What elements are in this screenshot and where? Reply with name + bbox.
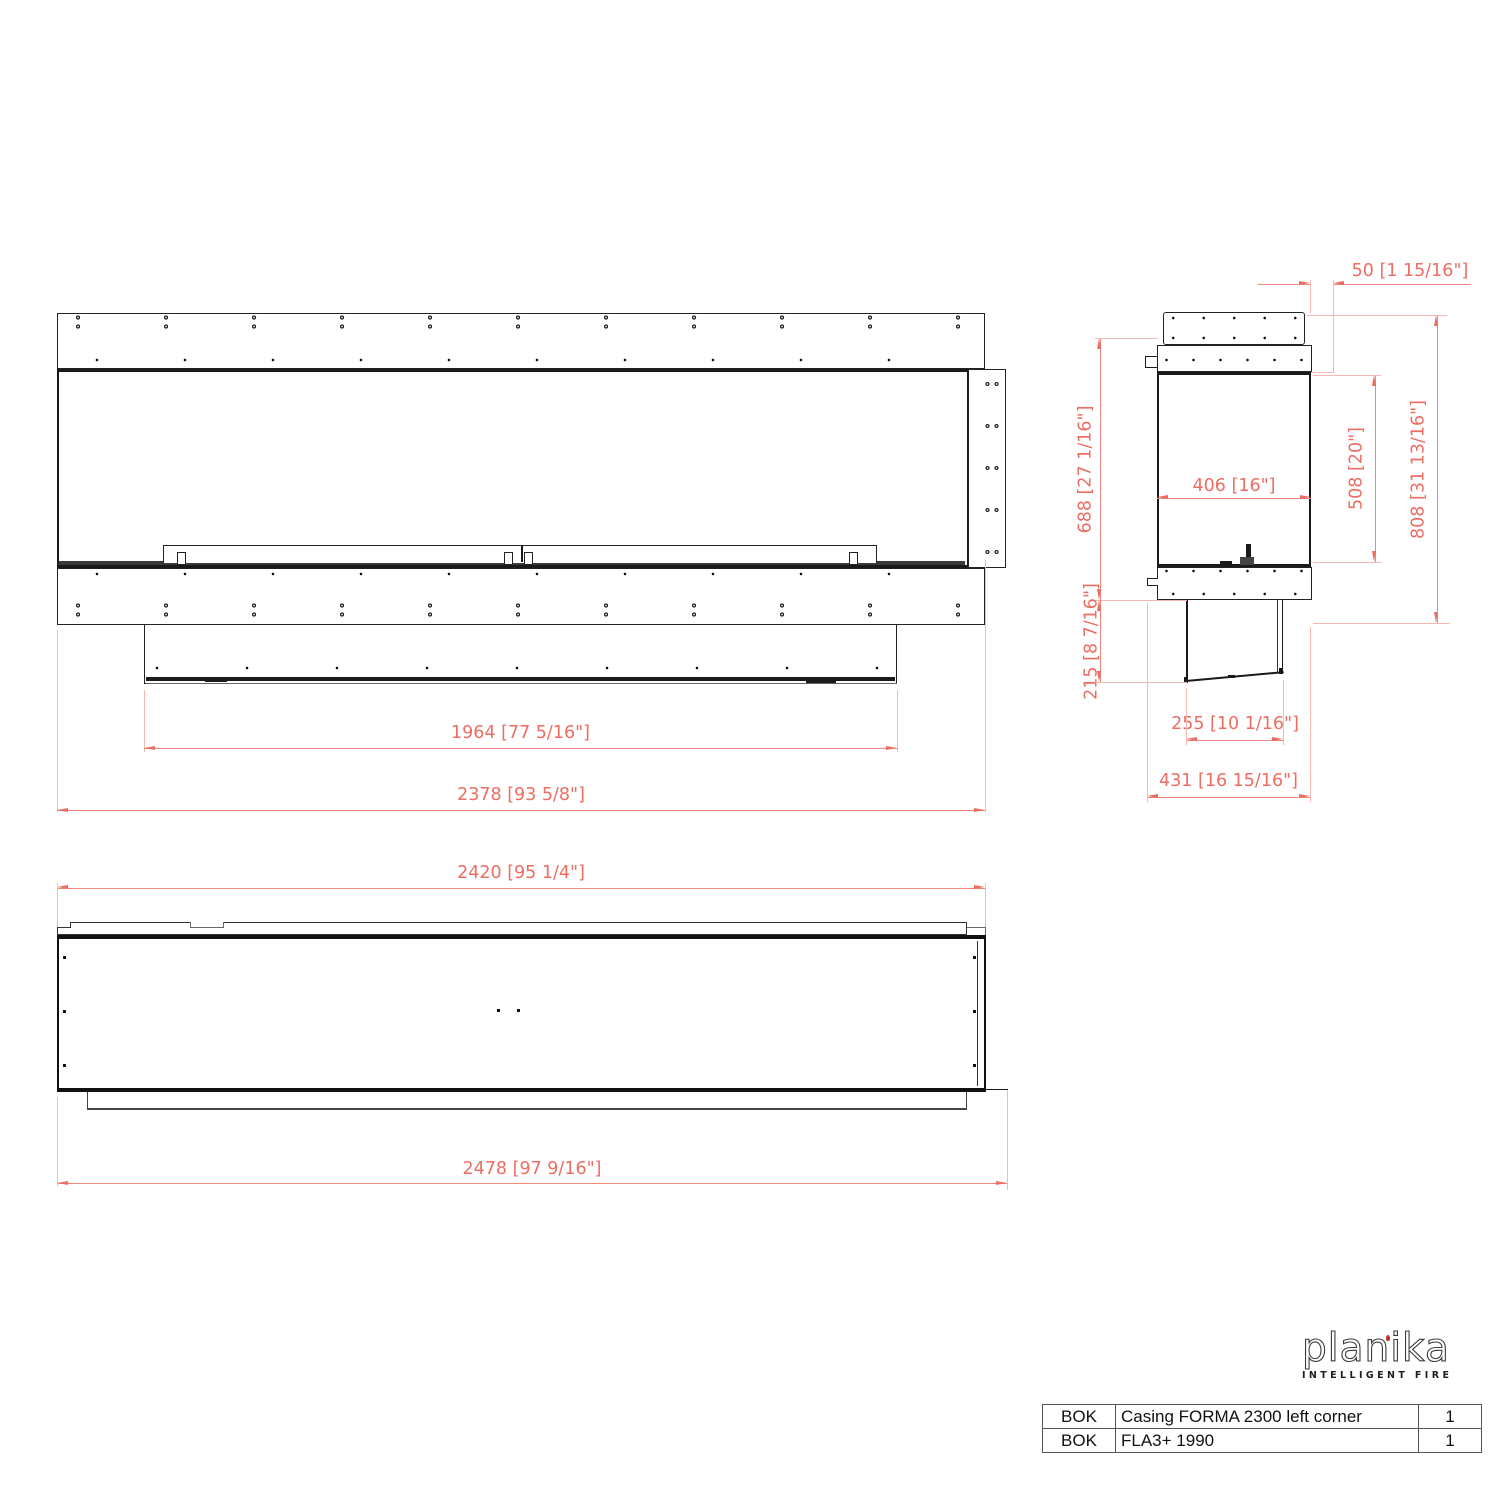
dim-line-431 [1147,797,1310,798]
extension-line [57,883,58,927]
hole-row [57,612,963,617]
arrowhead [1434,315,1438,326]
rivet-row [1164,592,1304,596]
extension-line [1283,680,1284,745]
dim-line-1964 [144,748,897,749]
brand-tagline: INTELLIGENT FIRE [1302,1370,1452,1381]
arrowhead [1186,737,1197,741]
wall-bracket [1145,367,1158,368]
front-main-body [57,369,968,568]
plan-back-strip [70,922,967,935]
burner-tray [163,545,877,563]
arrowhead [974,885,985,889]
dim-label-overall-height: 808 [31 13/16"] [1409,370,1430,570]
extension-line [1186,688,1187,745]
lip-bracket [806,680,836,683]
extension-line [1095,600,1187,601]
lip-bracket [205,679,227,682]
wall-bracket [1145,356,1158,357]
dim-line-2478 [57,1183,1007,1184]
dim-label-top-offset: 50 [1 15/16"] [1345,261,1475,282]
arrowhead [57,808,68,812]
arrowhead [996,1181,1007,1185]
dim-line-508 [1375,375,1376,562]
rivet-row [1164,336,1304,340]
arrowhead [974,808,985,812]
dim-label-body-height: 688 [27 1/16"] [1076,370,1097,570]
plan-inner-edge [977,941,978,1086]
bom-description-cell: FLA3+ 1990 [1116,1429,1419,1453]
tray-tab [524,552,533,565]
dim-label-overall-depth: 431 [16 15/16"] [1147,771,1310,792]
rivet-dot [63,956,66,959]
extension-line [1313,623,1450,624]
rivet-dot [517,1009,520,1012]
lower-duct-right [1282,600,1284,673]
wall-bracket [1145,356,1146,368]
dim-line-50b [1333,284,1471,285]
bom-row: BOK Casing FORMA 2300 left corner 1 [1043,1405,1482,1429]
strip-right-step [967,927,986,928]
arrowhead [1097,338,1101,349]
igniter-base [1240,557,1254,565]
extension-line [1147,603,1148,802]
duct-foot [1279,668,1283,674]
strip-left-tab [57,927,71,935]
rivet-row [144,666,894,670]
duct-foot [1228,675,1235,678]
dim-line-255 [1186,740,1283,741]
rivet-row [1158,569,1310,573]
tray-seam [521,546,523,562]
plan-main-body [57,935,986,1092]
extension-line [1313,562,1381,563]
dim-label-overall-width: 2378 [93 5/8"] [57,785,985,806]
bom-table: BOK Casing FORMA 2300 left corner 1 BOK … [1042,1404,1482,1453]
extension-line [1313,375,1381,376]
rivet-row [1158,358,1310,362]
hole-column [985,370,990,566]
rivet-dot [973,1064,976,1067]
hole-column [994,370,999,566]
extension-line [57,1097,58,1186]
dim-label-opening-depth: 406 [16"] [1157,476,1311,497]
arrowhead [1299,794,1310,798]
arrowhead [57,885,68,889]
dim-label-opening-height: 508 [20"] [1347,369,1368,569]
side-main-body [1157,372,1311,567]
bom-code-cell: BOK [1043,1429,1116,1453]
hole-row [57,315,963,320]
tray-tab [504,552,513,565]
arrowhead [1372,551,1376,562]
extension-line [1307,315,1447,316]
strip-notch-gap [191,921,223,924]
strip-notch [190,922,191,928]
bom-description-cell: Casing FORMA 2300 left corner [1116,1405,1419,1429]
tray-tab [177,552,186,565]
burner-box-lip [146,677,895,681]
dim-label-inner-width: 1964 [77 5/16"] [144,723,897,744]
dim-label-plan-overall-width: 2478 [97 9/16"] [57,1159,1007,1180]
arrowhead [144,746,155,750]
rivet-row [57,572,963,576]
extension-line [1095,682,1187,683]
rivet-dot [497,1009,500,1012]
bom-qty-cell: 1 [1419,1429,1482,1453]
burner-box-lip-edge [146,683,897,684]
extension-line [1333,280,1334,373]
extension-line [985,560,986,812]
rivet-dot [63,1010,66,1013]
arrowhead [1272,737,1283,741]
rivet-row [57,358,963,362]
brand-logo: planika [1302,1330,1450,1368]
lower-duct-left [1186,600,1188,682]
hole-row [57,603,963,608]
lower-duct-inner [1277,600,1278,672]
hole-row [57,324,963,329]
corner-return-edge [986,1089,1008,1090]
strip-right-step [985,927,986,935]
dim-line-2378 [57,810,985,811]
extension-line [1310,280,1311,313]
extension-line [1311,372,1333,373]
arrowhead [1434,612,1438,623]
flange-notch [1147,578,1158,586]
extension-line [1095,338,1157,339]
arrowhead [57,1181,68,1185]
rivet-dot [973,956,976,959]
extension-line [1310,627,1311,802]
tray-tab [849,552,858,565]
arrowhead [1372,375,1376,386]
strip-notch [223,922,224,928]
igniter-mark [1220,561,1232,564]
dim-line-808 [1437,315,1438,623]
logo-flame-icon [1386,1335,1390,1341]
bom-qty-cell: 1 [1419,1405,1482,1429]
arrowhead [1147,794,1158,798]
dim-line-2420 [57,888,985,889]
arrowhead [1299,281,1310,285]
arrowhead [1333,281,1344,285]
plan-front-lip [87,1092,967,1110]
dim-label-lower-depth: 255 [10 1/16"] [1160,714,1310,735]
drawing-canvas: 1964 [77 5/16"] 2378 [93 5/8"] 50 [1 15/… [0,0,1500,1500]
extension-line [1007,1090,1008,1190]
dim-label-body-width: 2420 [95 1/4"] [57,863,985,884]
bom-row: BOK FLA3+ 1990 1 [1043,1429,1482,1453]
extension-line [985,883,986,932]
dim-line-406 [1157,498,1311,499]
rivet-row [1164,316,1304,320]
dim-label-lower-height: 215 [8 7/16"] [1082,542,1103,742]
strip-notch [190,927,224,928]
bom-code-cell: BOK [1043,1405,1116,1429]
rivet-dot [973,1010,976,1013]
rivet-dot [63,1064,66,1067]
arrowhead [886,746,897,750]
burner-box-panel [144,625,897,684]
